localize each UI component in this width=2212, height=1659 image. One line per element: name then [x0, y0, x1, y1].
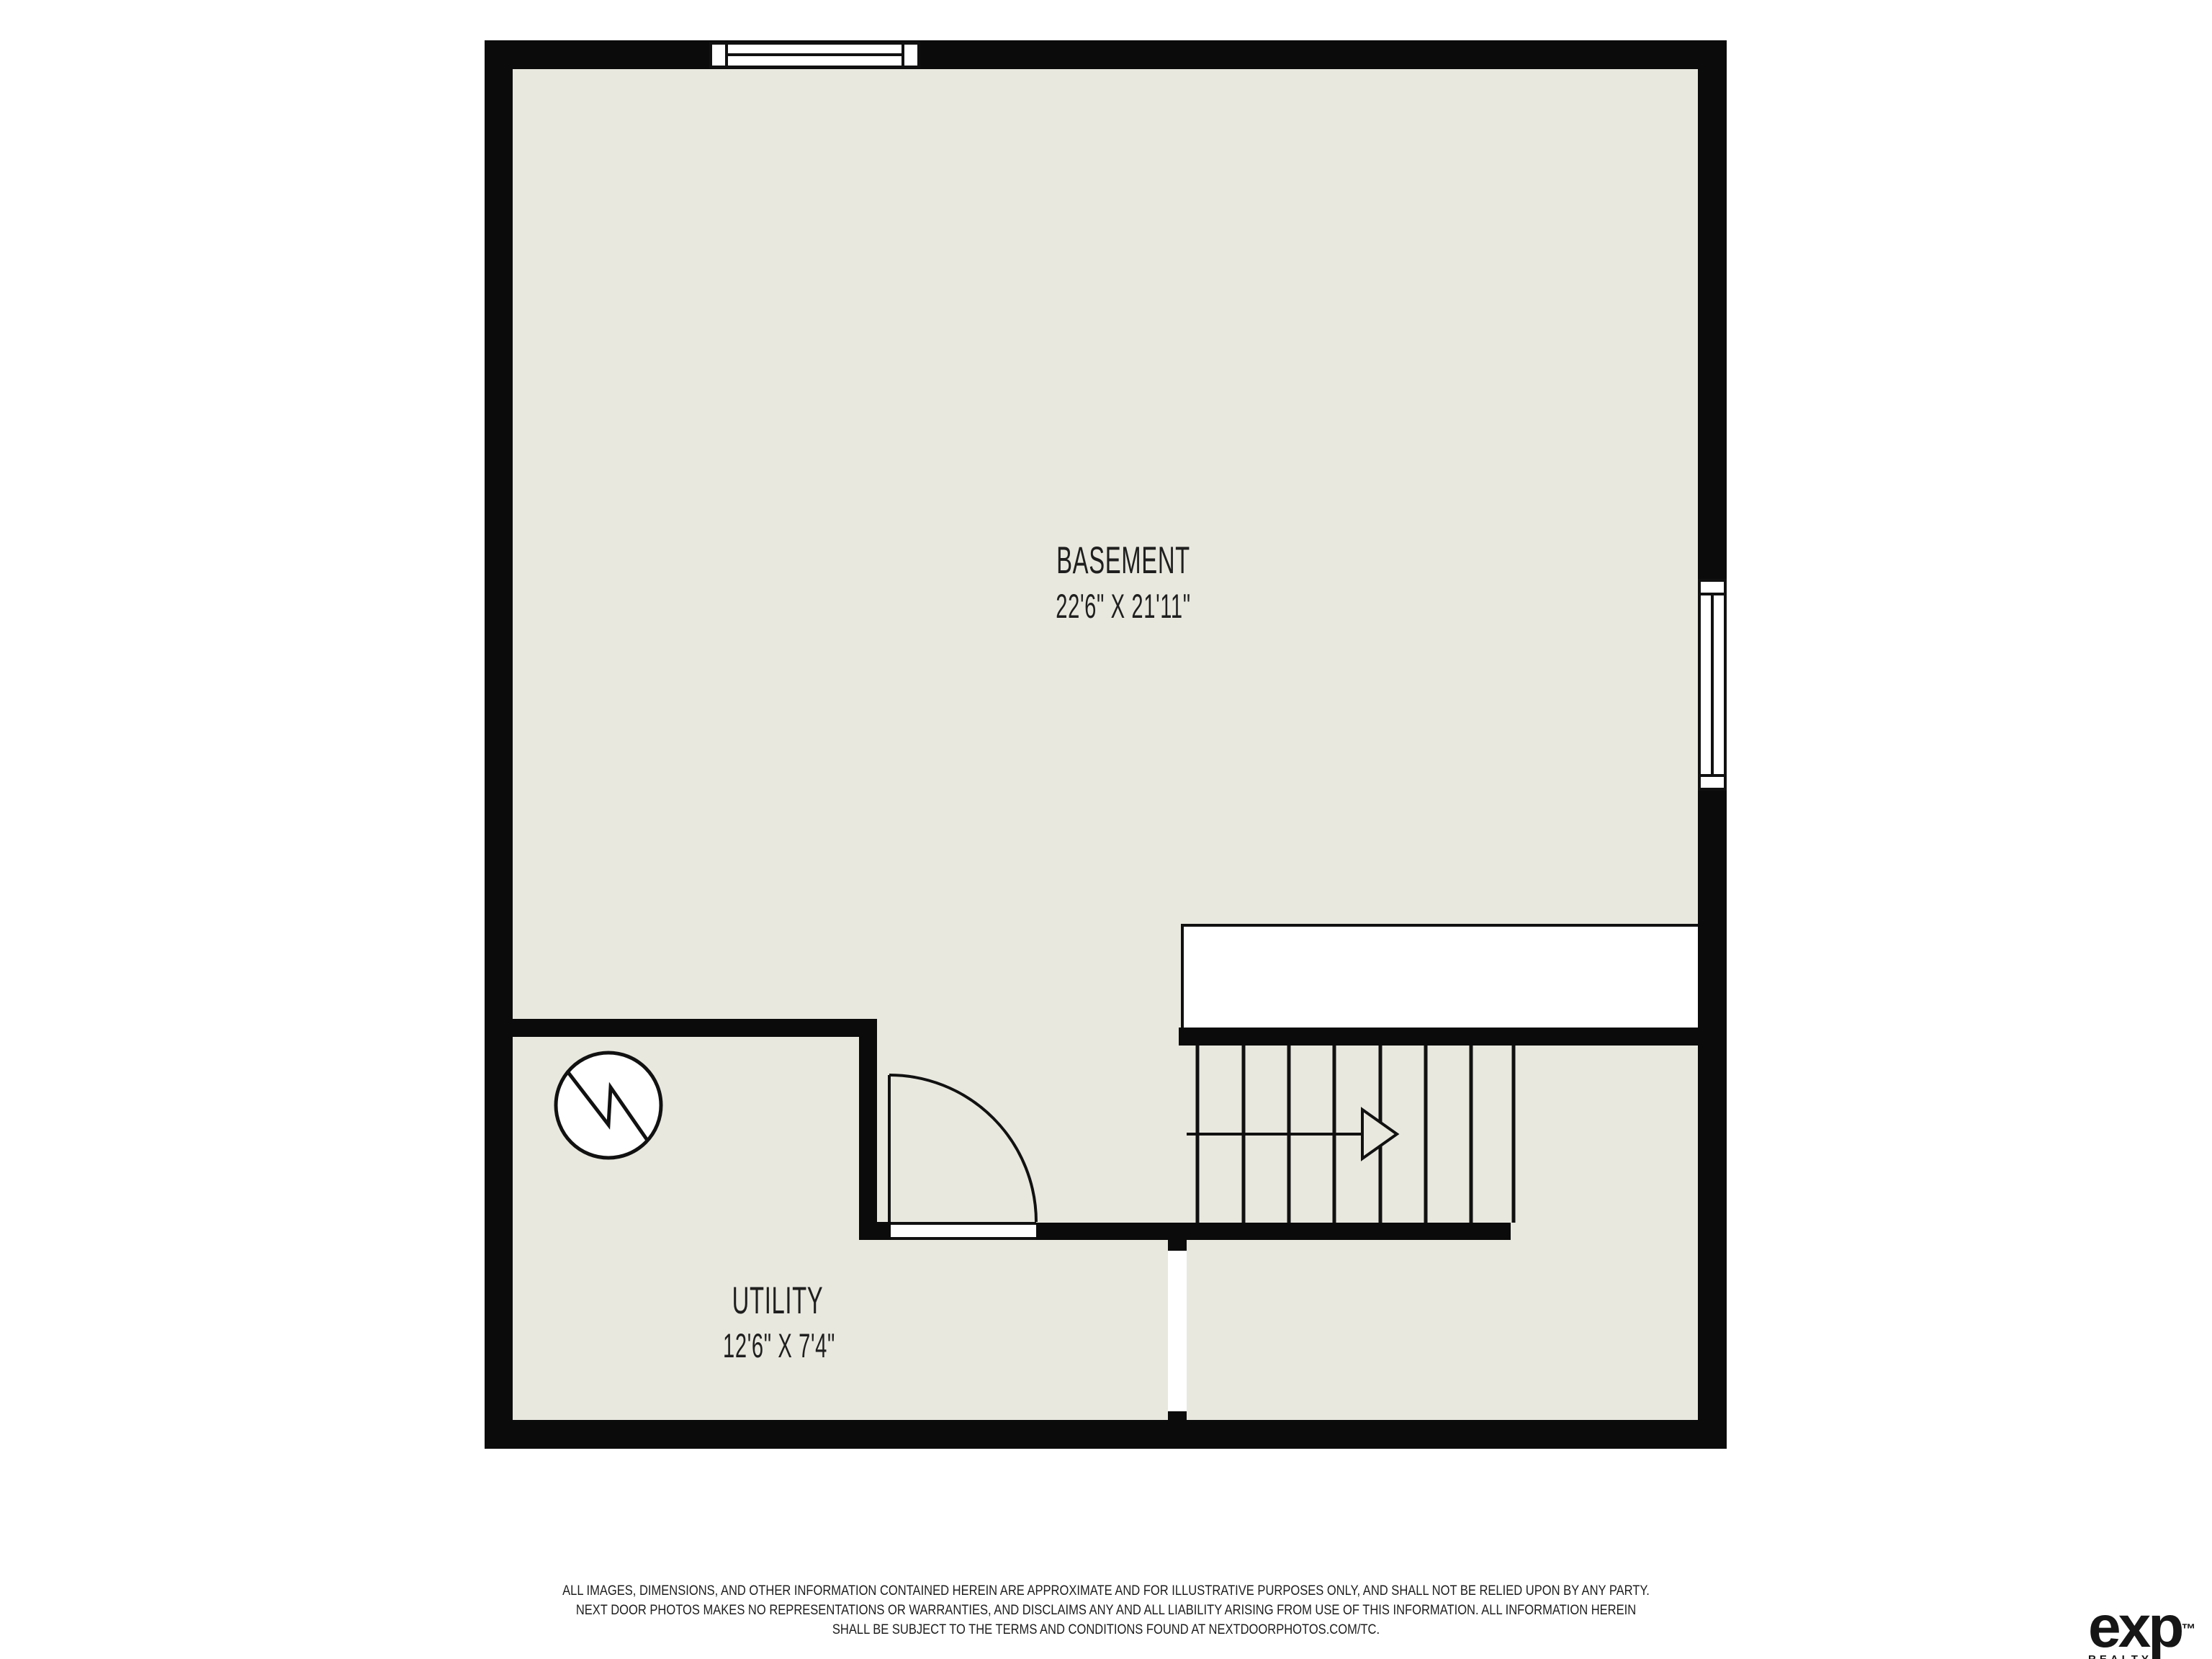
disclaimer-text: ALL IMAGES, DIMENSIONS, AND OTHER INFORM…	[562, 1581, 1650, 1640]
exp-realty-logo: exp™ REALTY	[2088, 1604, 2195, 1659]
disclaimer-line-1: ALL IMAGES, DIMENSIONS, AND OTHER INFORM…	[562, 1581, 1650, 1601]
disclaimer-line-3: SHALL BE SUBJECT TO THE TERMS AND CONDIT…	[562, 1620, 1650, 1640]
utility-room-label: UTILITY	[732, 1282, 824, 1320]
basement-room-label: BASEMENT	[1056, 541, 1190, 580]
floor-plan-page: BASEMENT 22'6" X 21'11" UTILITY 12'6" X …	[0, 0, 2212, 1659]
water-heater-icon	[556, 1053, 661, 1158]
stairs-direction-arrow	[1187, 1110, 1397, 1159]
basement-room-dimensions: 22'6" X 21'11"	[1056, 589, 1190, 623]
exp-wordmark: exp™	[2088, 1604, 2195, 1650]
door-swing	[889, 1075, 1036, 1222]
trademark-symbol: ™	[2181, 1622, 2195, 1637]
plan-linework	[0, 0, 2212, 1659]
utility-room-dimensions: 12'6" X 7'4"	[723, 1328, 835, 1362]
door-arc	[889, 1075, 1036, 1222]
disclaimer-line-2: NEXT DOOR PHOTOS MAKES NO REPRESENTATION…	[562, 1601, 1650, 1620]
